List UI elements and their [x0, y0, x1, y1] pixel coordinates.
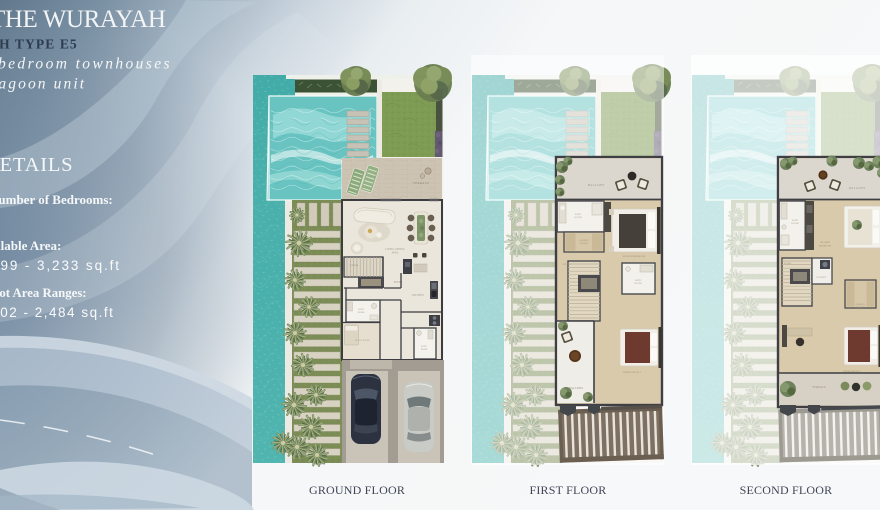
svg-text:ROOM: ROOM — [791, 222, 799, 225]
svg-text:SECOND FLOOR: SECOND FLOOR — [740, 483, 833, 497]
svg-text:BEDROOM: BEDROOM — [819, 244, 832, 247]
svg-text:STAIRS: STAIRS — [350, 264, 359, 267]
svg-text:WALK-IN: WALK-IN — [855, 303, 865, 306]
svg-text:STAIRS: STAIRS — [784, 262, 792, 265]
svg-text:KITCHEN: KITCHEN — [412, 294, 424, 297]
svg-text:GROUND FLOOR: GROUND FLOOR — [309, 483, 405, 497]
svg-text:STAIRS: STAIRS — [563, 263, 571, 266]
svg-text:TERRACE: TERRACE — [812, 385, 826, 389]
svg-text:DETAILS: DETAILS — [0, 154, 73, 176]
svg-text:2,102 - 2,484 sq.ft: 2,102 - 2,484 sq.ft — [0, 305, 114, 320]
svg-text:Sellable Area:: Sellable Area: — [0, 238, 61, 253]
svg-text:BATH: BATH — [421, 345, 427, 348]
svg-text:THE WURAYAH: THE WURAYAH — [0, 6, 166, 33]
svg-text:ROOM: ROOM — [358, 312, 365, 314]
svg-text:BATH: BATH — [358, 308, 364, 311]
svg-text:Plot Area Ranges:: Plot Area Ranges: — [0, 286, 87, 300]
svg-text:MAID'S ROOM: MAID'S ROOM — [355, 339, 370, 342]
svg-text:TH TYPE E5: TH TYPE E5 — [0, 37, 78, 52]
svg-text:Number of Bedrooms:: Number of Bedrooms: — [0, 192, 113, 207]
svg-text:ROOM: ROOM — [634, 282, 642, 285]
svg-text:BALCONY: BALCONY — [569, 386, 584, 390]
svg-text:BALCONY: BALCONY — [588, 183, 605, 187]
svg-text:lagoon unit: lagoon unit — [0, 76, 86, 93]
svg-text:ROOM: ROOM — [574, 216, 582, 219]
svg-text:CLOSET: CLOSET — [856, 307, 865, 309]
svg-text:TERRACE: TERRACE — [413, 181, 429, 185]
svg-text:WALK-IN: WALK-IN — [579, 239, 589, 242]
svg-text:CLOSET: CLOSET — [580, 243, 589, 245]
svg-text:LAUNDRY: LAUNDRY — [816, 276, 827, 279]
svg-text:2,299 - 3,233 sq.ft: 2,299 - 3,233 sq.ft — [0, 258, 121, 273]
svg-text:ROOM: ROOM — [421, 349, 428, 351]
svg-text:AREA: AREA — [391, 251, 398, 254]
svg-text:MASTER BEDROOM: MASTER BEDROOM — [623, 255, 646, 258]
svg-text:BEDROOM NO.2: BEDROOM NO.2 — [623, 371, 642, 374]
svg-text:FIRST FLOOR: FIRST FLOOR — [529, 483, 606, 497]
svg-text:BALCONY: BALCONY — [849, 186, 866, 190]
svg-text:bedroom townhouses: bedroom townhouses — [0, 56, 172, 73]
